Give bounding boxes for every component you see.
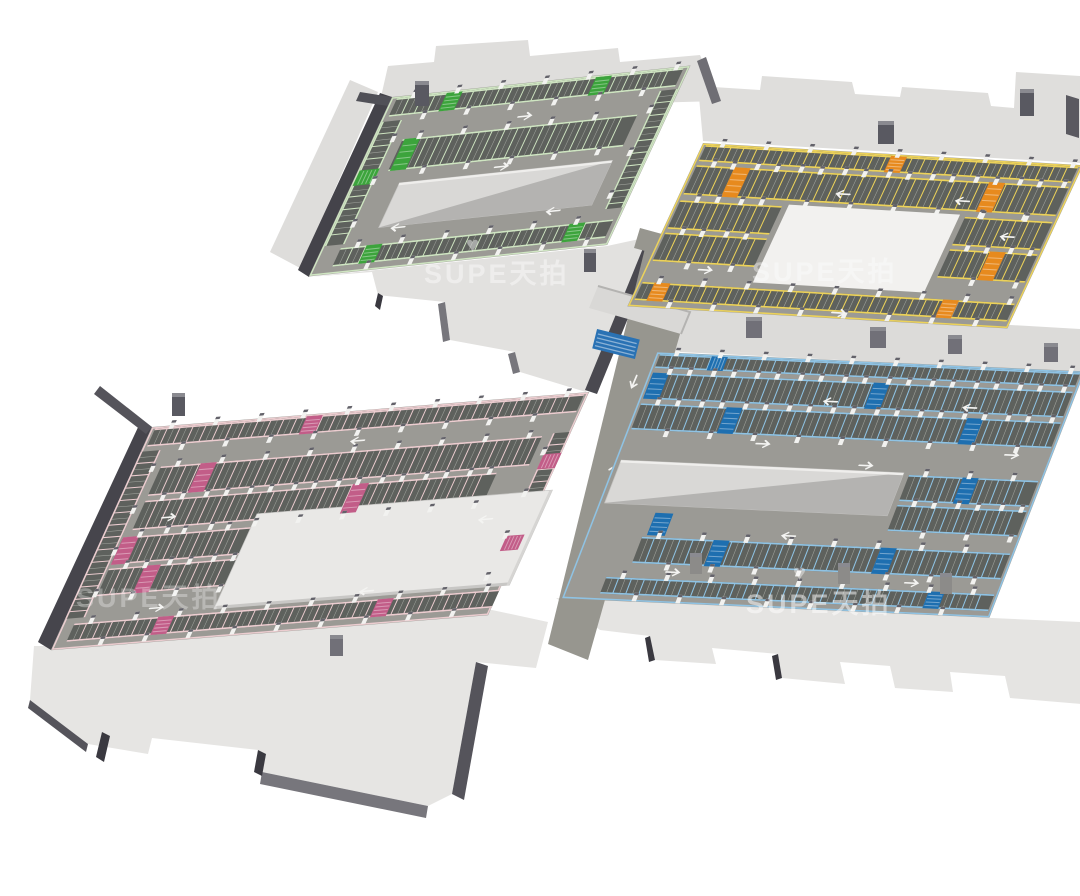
column-cap <box>259 413 265 416</box>
rooftop-core-top <box>1044 343 1058 347</box>
rooftop-core <box>878 124 894 144</box>
column-cap <box>391 402 397 405</box>
column-cap <box>1051 415 1056 418</box>
column-cap <box>913 498 918 501</box>
column-cap <box>776 371 781 374</box>
column-cap <box>1015 444 1020 447</box>
rooftop-core-top <box>838 563 850 567</box>
rooftop-core-top <box>746 317 762 321</box>
notch-midleft <box>375 293 383 310</box>
rooftop-core-top <box>415 81 429 85</box>
watermark-text: SUPE天拍 <box>76 583 222 613</box>
rooftop-core-top <box>870 327 886 331</box>
column-cap <box>1026 364 1031 367</box>
rooftop-core-top <box>330 635 343 639</box>
rooftop-core-top <box>940 573 952 577</box>
column-cap <box>1007 413 1012 416</box>
column-cap <box>788 403 793 406</box>
column-cap <box>929 584 934 587</box>
column-cap <box>876 407 881 410</box>
column-cap <box>745 534 750 537</box>
column-cap <box>1001 502 1006 505</box>
column-cap <box>702 532 707 535</box>
column-cap <box>840 436 845 439</box>
column-cap <box>820 373 825 376</box>
column-cap <box>634 593 639 596</box>
column-cap <box>479 395 485 398</box>
column-cap <box>851 356 856 359</box>
column-cap <box>920 409 925 412</box>
watermark-heart-icon: ♥ <box>793 560 809 585</box>
column-cap <box>657 397 662 400</box>
column-cap <box>975 380 980 383</box>
column-cap <box>753 576 758 579</box>
column-cap <box>957 500 962 503</box>
column-cap <box>969 471 974 474</box>
column-cap <box>832 405 837 408</box>
column-cap <box>844 374 849 377</box>
rooftop-core-top <box>584 249 596 253</box>
column-cap <box>796 435 801 438</box>
column-cap <box>678 595 683 598</box>
rooftop-core <box>172 396 185 416</box>
column-cap <box>1020 504 1025 507</box>
wall-pink-nw-stub <box>94 386 152 434</box>
column-cap <box>885 582 890 585</box>
column-cap <box>933 500 938 503</box>
column-cap <box>864 375 869 378</box>
column-cap <box>1027 414 1032 417</box>
scene-svg: SUPE天拍SUPE天拍SUPE天拍SUPE天拍♥♥ <box>0 0 1080 896</box>
column-cap <box>710 564 715 567</box>
rooftop-core <box>584 252 596 272</box>
column-cap <box>676 348 681 351</box>
column-cap <box>965 532 970 535</box>
column-cap <box>800 372 805 375</box>
column-cap <box>807 354 812 357</box>
column-cap <box>983 412 988 415</box>
column-cap <box>1063 384 1068 387</box>
column-cap <box>964 544 969 547</box>
column-cap <box>622 570 627 573</box>
rooftop-core <box>1044 346 1058 362</box>
column-cap <box>929 574 934 577</box>
rooftop-core <box>838 566 850 584</box>
column-cap <box>884 438 889 441</box>
column-cap <box>665 429 670 432</box>
column-cap <box>710 574 715 577</box>
zone-yellow <box>627 138 1080 329</box>
column-cap <box>921 530 926 533</box>
rooftop-core-top <box>878 121 894 125</box>
column-cap <box>951 379 956 382</box>
column-cap <box>896 408 901 411</box>
column-cap <box>744 401 749 404</box>
column-cap <box>931 378 936 381</box>
column-cap <box>1039 383 1044 386</box>
column-cap <box>732 369 737 372</box>
column-cap <box>888 376 893 379</box>
column-cap <box>753 566 758 569</box>
column-cap <box>523 392 529 395</box>
column-cap <box>925 469 930 472</box>
rooftop-core-top <box>172 393 185 397</box>
column-cap <box>764 402 769 405</box>
watermark-text: SUPE天拍 <box>424 259 570 289</box>
column-cap <box>689 367 694 370</box>
rooftop-core <box>1020 92 1034 116</box>
column-cap <box>764 352 769 355</box>
column-cap <box>977 502 982 505</box>
column-cap <box>658 530 663 533</box>
column-cap <box>171 420 177 423</box>
column-cap <box>435 399 441 402</box>
rooftop-core-top <box>948 335 962 339</box>
column-cap <box>895 358 900 361</box>
column-cap <box>972 586 977 589</box>
column-cap <box>928 440 933 443</box>
column-cap <box>939 360 944 363</box>
column-cap <box>971 442 976 445</box>
watermark-text: SUPE天拍 <box>746 589 892 619</box>
rooftop-core <box>940 576 952 594</box>
column-cap <box>833 538 838 541</box>
column-cap <box>940 607 945 610</box>
watermark-heart-icon: ♥ <box>466 232 482 257</box>
rooftop-core <box>746 320 762 338</box>
rooftop-core <box>330 638 343 656</box>
column-cap <box>995 381 1000 384</box>
column-cap <box>720 350 725 353</box>
column-cap <box>921 542 926 545</box>
column-cap <box>852 406 857 409</box>
column-cap <box>939 410 944 413</box>
column-cap <box>666 562 671 565</box>
column-cap <box>808 404 813 407</box>
column-cap <box>1019 382 1024 385</box>
column-cap <box>1012 473 1017 476</box>
column-cap <box>982 362 987 365</box>
column-cap <box>347 406 353 409</box>
rooftop-core-top <box>690 553 702 557</box>
column-cap <box>713 368 718 371</box>
column-cap <box>885 572 890 575</box>
column-cap <box>1009 534 1014 537</box>
column-cap <box>669 366 674 369</box>
wall-yellow-roof <box>1066 95 1079 138</box>
column-cap <box>215 416 221 419</box>
column-cap <box>896 605 901 608</box>
column-cap <box>709 431 714 434</box>
column-cap <box>752 433 757 436</box>
column-cap <box>721 400 726 403</box>
rooftop-core <box>870 330 886 348</box>
column-cap <box>721 597 726 600</box>
column-cap <box>701 399 706 402</box>
column-cap <box>1070 366 1075 369</box>
column-cap <box>877 540 882 543</box>
column-cap <box>303 409 309 412</box>
parking-level-3d-render: SUPE天拍SUPE天拍SUPE天拍SUPE天拍♥♥ <box>0 0 1080 896</box>
rooftop-core <box>415 84 429 106</box>
column-cap <box>756 370 761 373</box>
rooftop-core <box>690 556 702 574</box>
watermark-text: SUPE天拍 <box>752 257 898 287</box>
rooftop-core <box>948 338 962 354</box>
column-cap <box>972 576 977 579</box>
rooftop-core-top <box>1020 89 1034 93</box>
column-cap <box>908 377 913 380</box>
column-cap <box>677 398 682 401</box>
column-cap <box>566 388 572 391</box>
